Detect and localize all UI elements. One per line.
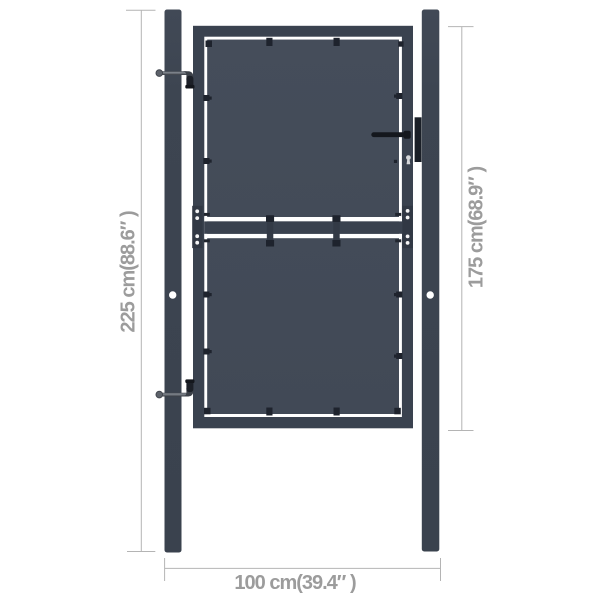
svg-text:175 cm(68.9″ ): 175 cm(68.9″ ) xyxy=(466,167,488,289)
svg-text:225 cm(88.6″ ): 225 cm(88.6″ ) xyxy=(118,211,140,333)
svg-text:100 cm(39.4″ ): 100 cm(39.4″ ) xyxy=(234,572,356,594)
